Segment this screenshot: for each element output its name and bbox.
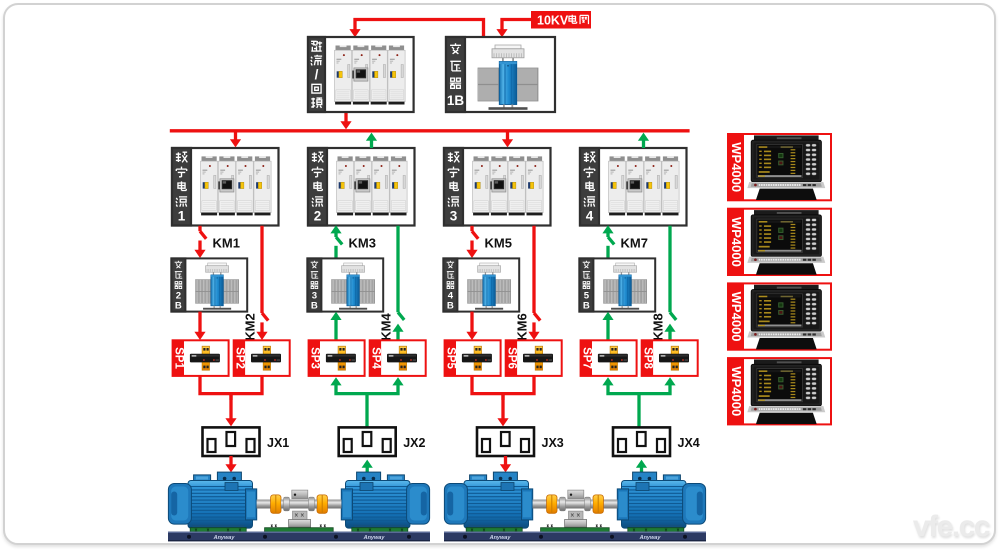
svg-text:1: 1: [178, 209, 186, 224]
svg-text:SP1: SP1: [172, 347, 184, 369]
svg-text:3: 3: [450, 209, 458, 224]
svg-text:SP3: SP3: [308, 347, 320, 369]
svg-text:B: B: [175, 301, 182, 312]
svg-text:SP6: SP6: [506, 347, 518, 369]
svg-text:1B: 1B: [447, 93, 465, 108]
svg-text:JX1: JX1: [267, 436, 289, 450]
svg-text:JX3: JX3: [542, 436, 564, 450]
svg-text:B: B: [447, 301, 454, 312]
svg-text:SP4: SP4: [370, 347, 382, 369]
svg-text:SP7: SP7: [580, 347, 592, 369]
svg-text:4: 4: [586, 209, 594, 224]
svg-text:B: B: [583, 301, 590, 312]
svg-text:JX4: JX4: [678, 436, 700, 450]
svg-text:WP4000: WP4000: [729, 142, 744, 192]
svg-text:SP8: SP8: [642, 347, 654, 369]
svg-text:KM1: KM1: [213, 236, 240, 251]
svg-text:KM8: KM8: [650, 313, 665, 340]
svg-text:KM4: KM4: [378, 313, 393, 341]
svg-text:WP4000: WP4000: [729, 292, 744, 342]
svg-text:KM2: KM2: [242, 313, 257, 340]
svg-text:KM5: KM5: [485, 236, 512, 251]
svg-text:10KV: 10KV: [537, 14, 569, 28]
svg-text:SP5: SP5: [444, 347, 456, 369]
svg-text:B: B: [311, 301, 318, 312]
svg-text:KM7: KM7: [621, 236, 648, 251]
svg-text:SP2: SP2: [234, 347, 246, 369]
svg-text:KM6: KM6: [514, 313, 529, 340]
svg-text:KM3: KM3: [349, 236, 376, 251]
svg-text:JX2: JX2: [403, 436, 425, 450]
svg-text:/: /: [315, 67, 319, 82]
svg-text:WP4000: WP4000: [729, 217, 744, 267]
svg-text:2: 2: [314, 209, 322, 224]
svg-text:WP4000: WP4000: [729, 366, 744, 416]
